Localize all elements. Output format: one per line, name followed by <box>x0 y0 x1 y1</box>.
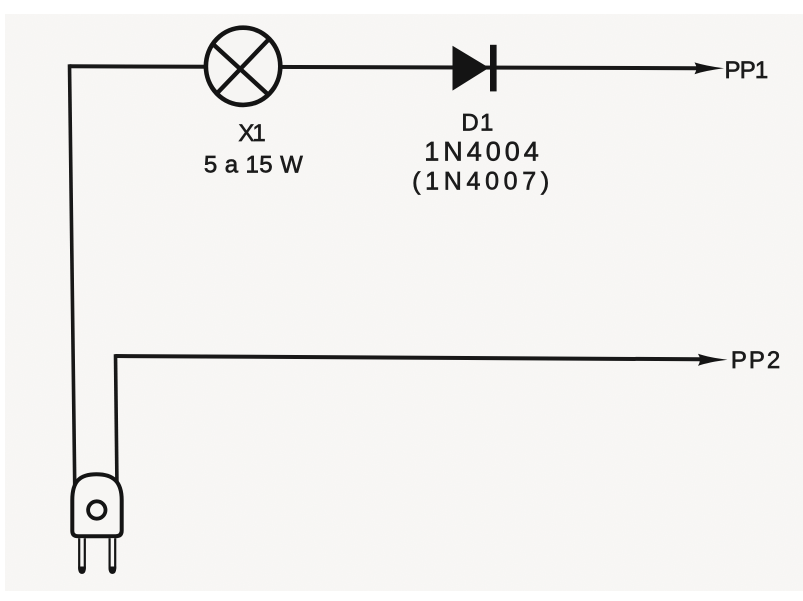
svg-text:D1: D1 <box>461 110 494 137</box>
svg-text:5 a 15 W: 5 a 15 W <box>204 152 303 179</box>
svg-text:PP2: PP2 <box>731 347 782 374</box>
svg-text:(1N4007): (1N4007) <box>412 168 554 196</box>
svg-text:X1: X1 <box>238 120 265 147</box>
svg-text:PP1: PP1 <box>725 57 768 84</box>
svg-text:1N4004: 1N4004 <box>424 137 543 167</box>
